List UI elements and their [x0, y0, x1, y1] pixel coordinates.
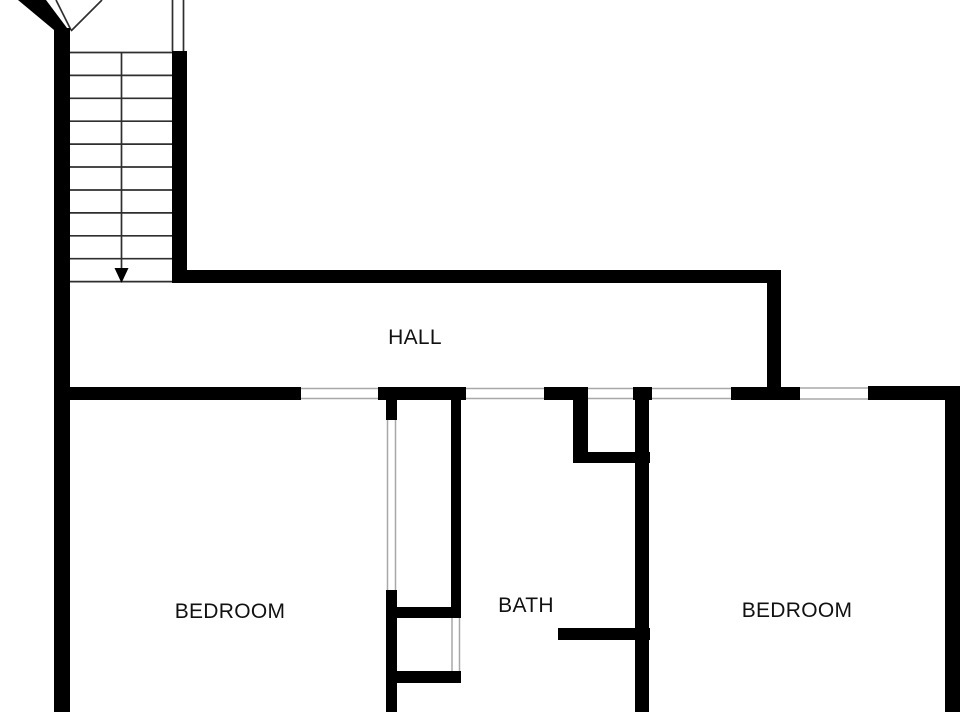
room-label-bedroom-right: BEDROOM	[742, 599, 853, 623]
bedroom-left-north-wall	[54, 387, 301, 400]
stair-side-wall	[172, 51, 187, 283]
room-label-hall: HALL	[388, 326, 442, 350]
hall-south-wall-d	[731, 387, 800, 400]
closet-east-wall	[451, 387, 461, 618]
hall-east-wall	[767, 270, 781, 400]
room-label-bath: BATH	[498, 594, 554, 618]
hall-south-wall-b	[544, 387, 588, 400]
closet-west-wall-upper	[386, 400, 397, 420]
hall-north-wall	[172, 270, 781, 283]
exterior-wall-diagonal	[18, 0, 70, 46]
bath-divider-wall	[635, 400, 649, 712]
left-exterior-wall	[54, 28, 70, 712]
hall-south-wall-e	[868, 386, 960, 400]
room-label-bedroom-left: BEDROOM	[175, 600, 286, 624]
lower-closet-south-wall	[395, 671, 461, 683]
bath-stub-wall	[558, 628, 650, 640]
closet-south-wall	[386, 607, 461, 618]
right-exterior-wall	[945, 400, 960, 712]
floor-plan: HALL BEDROOM BATH BEDROOM	[0, 0, 960, 720]
hall-south-wall-c	[633, 387, 652, 400]
stair-break-line	[71, 0, 102, 31]
